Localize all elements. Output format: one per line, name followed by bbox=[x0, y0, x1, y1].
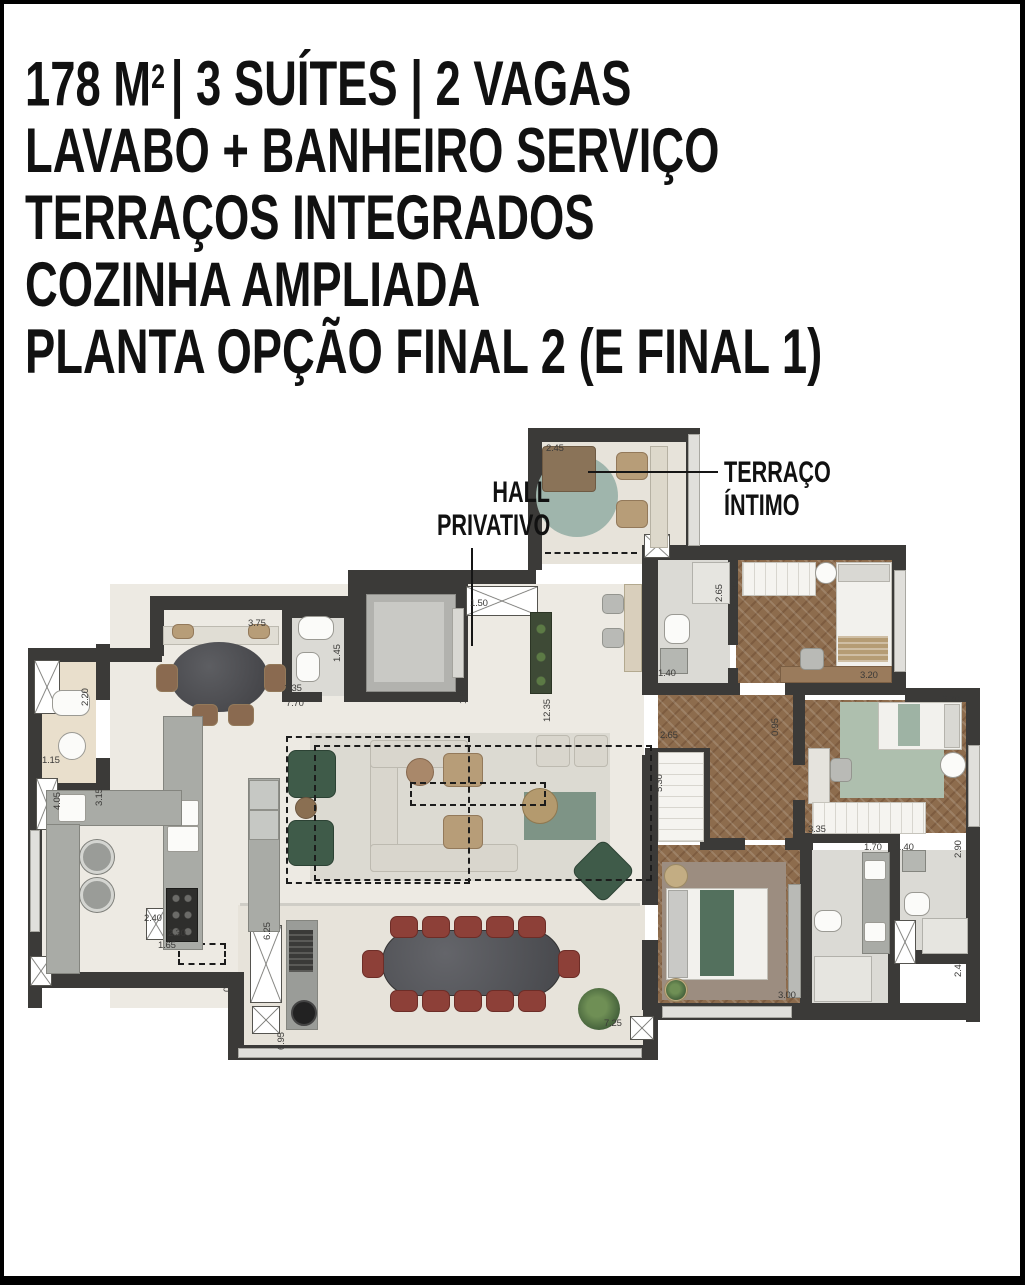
shaft-xbox bbox=[252, 1006, 280, 1034]
copa-chair bbox=[228, 704, 254, 726]
copa-cushion bbox=[172, 624, 194, 639]
shaft-xbox bbox=[466, 586, 538, 616]
suite2-bath-toilet bbox=[904, 892, 930, 916]
grill-sink bbox=[291, 1000, 317, 1026]
window bbox=[662, 1006, 792, 1018]
grill bbox=[289, 930, 313, 972]
suite2-pillow bbox=[944, 704, 960, 748]
copa-table bbox=[170, 642, 268, 712]
vertical-garden bbox=[530, 612, 552, 694]
suite2-bath-shower bbox=[922, 918, 968, 954]
page-border bbox=[0, 0, 1025, 4]
dining-chair bbox=[486, 990, 514, 1012]
master-tv-cabinet bbox=[788, 884, 801, 998]
label-hall-leader-line bbox=[471, 548, 473, 646]
dining-chair bbox=[518, 990, 546, 1012]
master-pillows bbox=[668, 890, 688, 978]
option-dashed-line bbox=[545, 552, 637, 554]
page-border bbox=[0, 1276, 1025, 1285]
master-bath-sink bbox=[864, 860, 886, 880]
floorplan-page: 178 M2| 3 SUÍTES | 2 VAGAS LAVABO + BANH… bbox=[0, 0, 1025, 1285]
suite2-desk-chair bbox=[830, 758, 852, 782]
hall-desk-chair bbox=[602, 628, 624, 648]
dining-chair bbox=[390, 916, 418, 938]
wall-segment bbox=[793, 800, 805, 842]
label-terraco-leader-line bbox=[588, 471, 718, 473]
service-bath-toilet bbox=[52, 690, 90, 716]
master-nightstand bbox=[664, 864, 688, 888]
terraco-bench bbox=[650, 446, 668, 548]
master-throw bbox=[700, 890, 734, 976]
kitchen-sink bbox=[167, 826, 199, 852]
dining-chair bbox=[486, 916, 514, 938]
window bbox=[30, 830, 40, 932]
suite2-closet bbox=[812, 802, 926, 834]
wall-segment bbox=[150, 596, 164, 656]
copa-cushion bbox=[248, 624, 270, 639]
window bbox=[688, 434, 700, 546]
copa-chair bbox=[156, 664, 178, 692]
suite2-desk bbox=[808, 748, 830, 804]
laundry-sink bbox=[58, 794, 86, 822]
shaft-xbox bbox=[250, 925, 282, 1003]
master-plant bbox=[666, 980, 686, 1000]
copa-chair bbox=[264, 664, 286, 692]
suite1-nightstand bbox=[815, 562, 837, 584]
wall-segment bbox=[728, 668, 738, 685]
wall-segment bbox=[645, 683, 740, 695]
terrace-slider-line bbox=[240, 903, 640, 906]
elevator-car-inner bbox=[374, 602, 444, 682]
shaft-xbox bbox=[630, 1016, 654, 1040]
terraco-chair bbox=[616, 452, 648, 480]
master-bath-sink bbox=[864, 922, 886, 942]
wall-segment bbox=[793, 695, 805, 765]
dining-table bbox=[382, 930, 562, 996]
wall-segment bbox=[785, 683, 906, 695]
suite2-nightstand bbox=[940, 752, 966, 778]
wall-segment bbox=[966, 688, 980, 1022]
option-dashed-outline bbox=[410, 782, 546, 806]
page-border bbox=[1020, 0, 1025, 1285]
suite2-throw bbox=[898, 704, 920, 746]
dining-chair bbox=[362, 950, 384, 978]
master-bath-toilet bbox=[814, 910, 842, 932]
dining-chair bbox=[558, 950, 580, 978]
suite1-closet bbox=[742, 562, 816, 596]
kitchen-fridge bbox=[249, 810, 279, 840]
label-terraco-intimo: TERRAÇO ÍNTIMO bbox=[724, 456, 924, 522]
keyplan: 3 4 1 2 Rua Michigan Rua Ribeiro do Vale… bbox=[0, 1100, 1025, 1285]
option-dashed-outline bbox=[314, 745, 652, 881]
lavabo-toilet bbox=[298, 616, 334, 640]
hall-desk bbox=[624, 584, 642, 672]
kitchen-stove bbox=[166, 888, 198, 942]
terraco-sofa bbox=[542, 446, 596, 492]
page-border bbox=[0, 0, 4, 1285]
wall-segment bbox=[800, 838, 812, 1005]
suite1-sink bbox=[660, 648, 688, 674]
dining-chair bbox=[390, 990, 418, 1012]
wall-segment bbox=[28, 972, 240, 988]
lavabo-sink bbox=[296, 652, 320, 682]
terrace-plant bbox=[578, 988, 620, 1030]
label-hall-privativo: HALL PRIVATIVO bbox=[350, 476, 550, 542]
wall-segment bbox=[642, 545, 658, 695]
washing-machine bbox=[80, 878, 114, 912]
shaft-xbox bbox=[894, 920, 916, 964]
dining-chair bbox=[518, 916, 546, 938]
floor-plan: HALL PRIVATIVO TERRAÇO ÍNTIMO 2.452.201.… bbox=[0, 0, 1025, 1285]
suite1-shower bbox=[692, 562, 730, 604]
wall-segment bbox=[282, 692, 322, 702]
suite2-bath-sink bbox=[902, 850, 926, 872]
master-closet bbox=[658, 752, 704, 842]
wall-segment bbox=[96, 644, 110, 700]
suite1-pillow bbox=[838, 564, 890, 582]
wall-segment bbox=[642, 940, 658, 1010]
wall-segment bbox=[528, 428, 700, 442]
wall-segment bbox=[645, 545, 906, 560]
suite1-toilet bbox=[664, 614, 690, 644]
hall-desk-chair bbox=[602, 594, 624, 614]
dining-chair bbox=[422, 990, 450, 1012]
wall-segment bbox=[805, 833, 900, 843]
suite1-desk-chair bbox=[800, 648, 824, 670]
suite1-desk bbox=[780, 666, 892, 683]
washing-machine bbox=[80, 840, 114, 874]
elevator-door bbox=[452, 608, 464, 678]
service-bath-sink bbox=[58, 732, 86, 760]
window bbox=[238, 1048, 642, 1058]
master-bath-shower bbox=[814, 956, 872, 1002]
dining-chair bbox=[422, 916, 450, 938]
laundry-cabinet bbox=[46, 824, 80, 974]
window bbox=[968, 745, 980, 827]
suite1-throw bbox=[838, 636, 888, 662]
terraco-chair bbox=[616, 500, 648, 528]
dining-chair bbox=[454, 916, 482, 938]
window bbox=[894, 570, 906, 672]
dining-chair bbox=[454, 990, 482, 1012]
kitchen-fridge bbox=[249, 780, 279, 810]
